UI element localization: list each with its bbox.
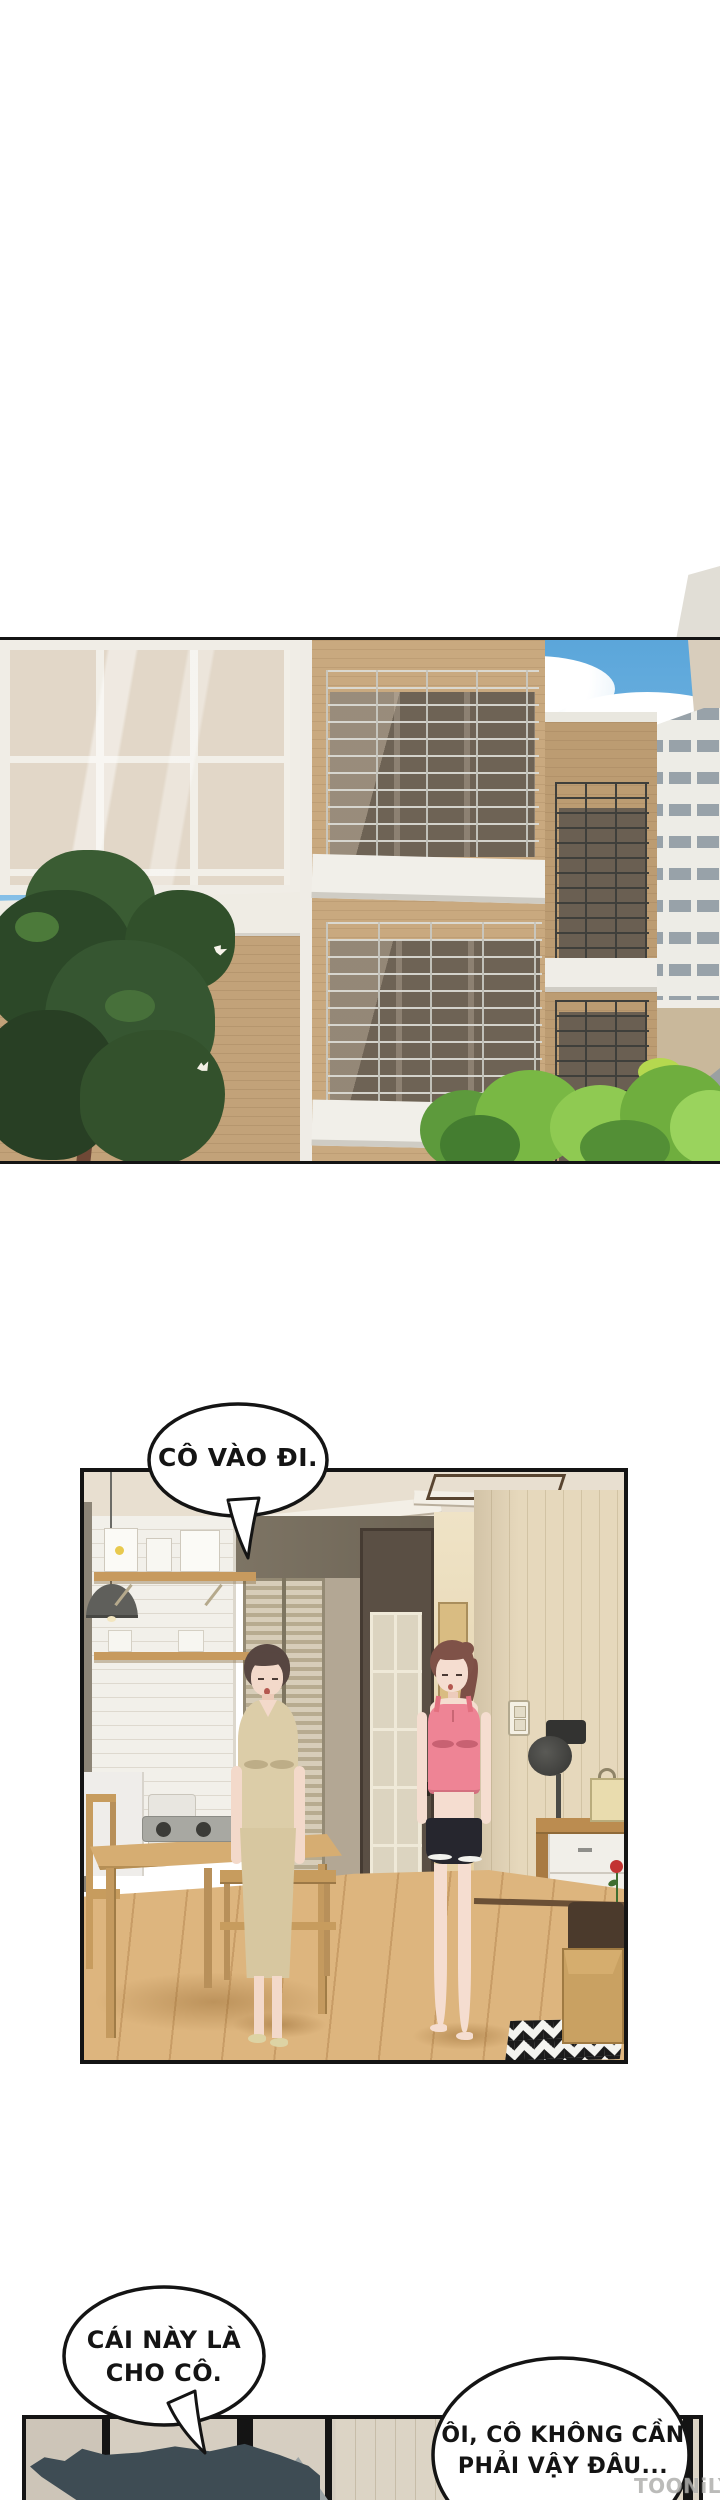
exterior-panel <box>0 637 720 1164</box>
rose-bloom <box>610 1860 623 1873</box>
arm <box>294 1766 305 1864</box>
window-frame-bar <box>325 2419 332 2500</box>
webtoon-page: CÔ VÀO ĐI. CÁI NÀY LÀ CHO CÔ. ÔI, CÔ KHÔ… <box>0 0 720 2500</box>
bushes <box>420 1060 720 1161</box>
tower-trim <box>300 640 312 1161</box>
gas-burner <box>156 1822 171 1837</box>
speech-bubble-text: CÁI NÀY LÀ CHO CÔ. <box>64 2324 264 2390</box>
foot <box>430 2024 447 2032</box>
cleavage-line <box>452 1710 454 1722</box>
light-switch-button <box>514 1706 526 1718</box>
bust-shading <box>432 1740 454 1748</box>
balcony-slab <box>545 958 657 992</box>
hair-fringe <box>434 1646 470 1660</box>
rose-stem <box>616 1870 618 1902</box>
eye <box>258 1678 264 1680</box>
balcony-railing-dark <box>555 782 649 958</box>
standing-fan-head <box>528 1736 572 1776</box>
bubble-line: ÔI, CÔ KHÔNG CẦN <box>441 2423 684 2448</box>
rose <box>608 1860 626 1904</box>
arm <box>231 1766 242 1864</box>
bust-shading <box>270 1760 294 1769</box>
balcony-railing <box>326 670 539 857</box>
storage-box <box>590 1778 626 1822</box>
midriff <box>434 1792 474 1820</box>
foot <box>456 2032 473 2040</box>
leg <box>254 1976 264 2036</box>
speech-bubble-enter <box>145 1402 335 1567</box>
tree-foliage <box>80 1030 225 1164</box>
building-corner-sliver <box>676 566 720 640</box>
speech-bubble-text: CÔ VÀO ĐI. <box>148 1444 328 1472</box>
shoe <box>248 2034 266 2043</box>
table-leg <box>106 1868 116 2038</box>
shorts-trim <box>458 1856 482 1862</box>
chair-leg <box>324 1884 330 1976</box>
woman-right <box>414 1640 494 2064</box>
mouth <box>448 1684 453 1690</box>
cardboard-box-flap <box>564 1950 622 1974</box>
cup <box>178 1630 204 1652</box>
speech-bubble-text: ÔI, CÔ KHÔNG CẦN PHẢI VẬY ĐÂU... <box>434 2420 692 2482</box>
leg <box>272 1976 282 2038</box>
woman-left <box>230 1644 306 2054</box>
chair-rail <box>86 1794 116 1802</box>
eye <box>272 1678 278 1680</box>
leg <box>458 1864 471 2032</box>
tree <box>0 850 255 1161</box>
kitchen-shelf <box>94 1572 256 1581</box>
bust-shading <box>456 1740 478 1748</box>
drawer-handle <box>578 1848 592 1852</box>
arm <box>481 1712 491 1824</box>
bubble-line: CÁI NÀY LÀ <box>87 2326 241 2354</box>
tree-foliage-highlight <box>105 990 155 1022</box>
shorts-trim <box>428 1854 452 1860</box>
arm <box>417 1712 427 1824</box>
cup <box>108 1630 132 1652</box>
milk-carton-label <box>115 1546 124 1555</box>
pendant-lamp-bulb <box>107 1616 116 1622</box>
tree-foliage-highlight <box>15 912 59 942</box>
tank-top <box>428 1704 480 1794</box>
leg <box>434 1864 447 2026</box>
light-switch-button <box>514 1719 526 1731</box>
chair-post <box>86 1794 93 1969</box>
dark-furniture <box>568 1902 624 1954</box>
eye <box>442 1674 448 1676</box>
balcony-slab <box>311 854 552 904</box>
bubble-line: CHO CÔ. <box>106 2359 223 2387</box>
bust-shading <box>244 1760 268 1769</box>
table-leg <box>204 1868 212 1988</box>
gas-burner <box>196 1822 211 1837</box>
shoe <box>270 2038 288 2047</box>
dress-skirt <box>240 1828 296 1978</box>
watermark: TOONiLY <box>634 2474 720 2498</box>
eye <box>456 1674 462 1676</box>
